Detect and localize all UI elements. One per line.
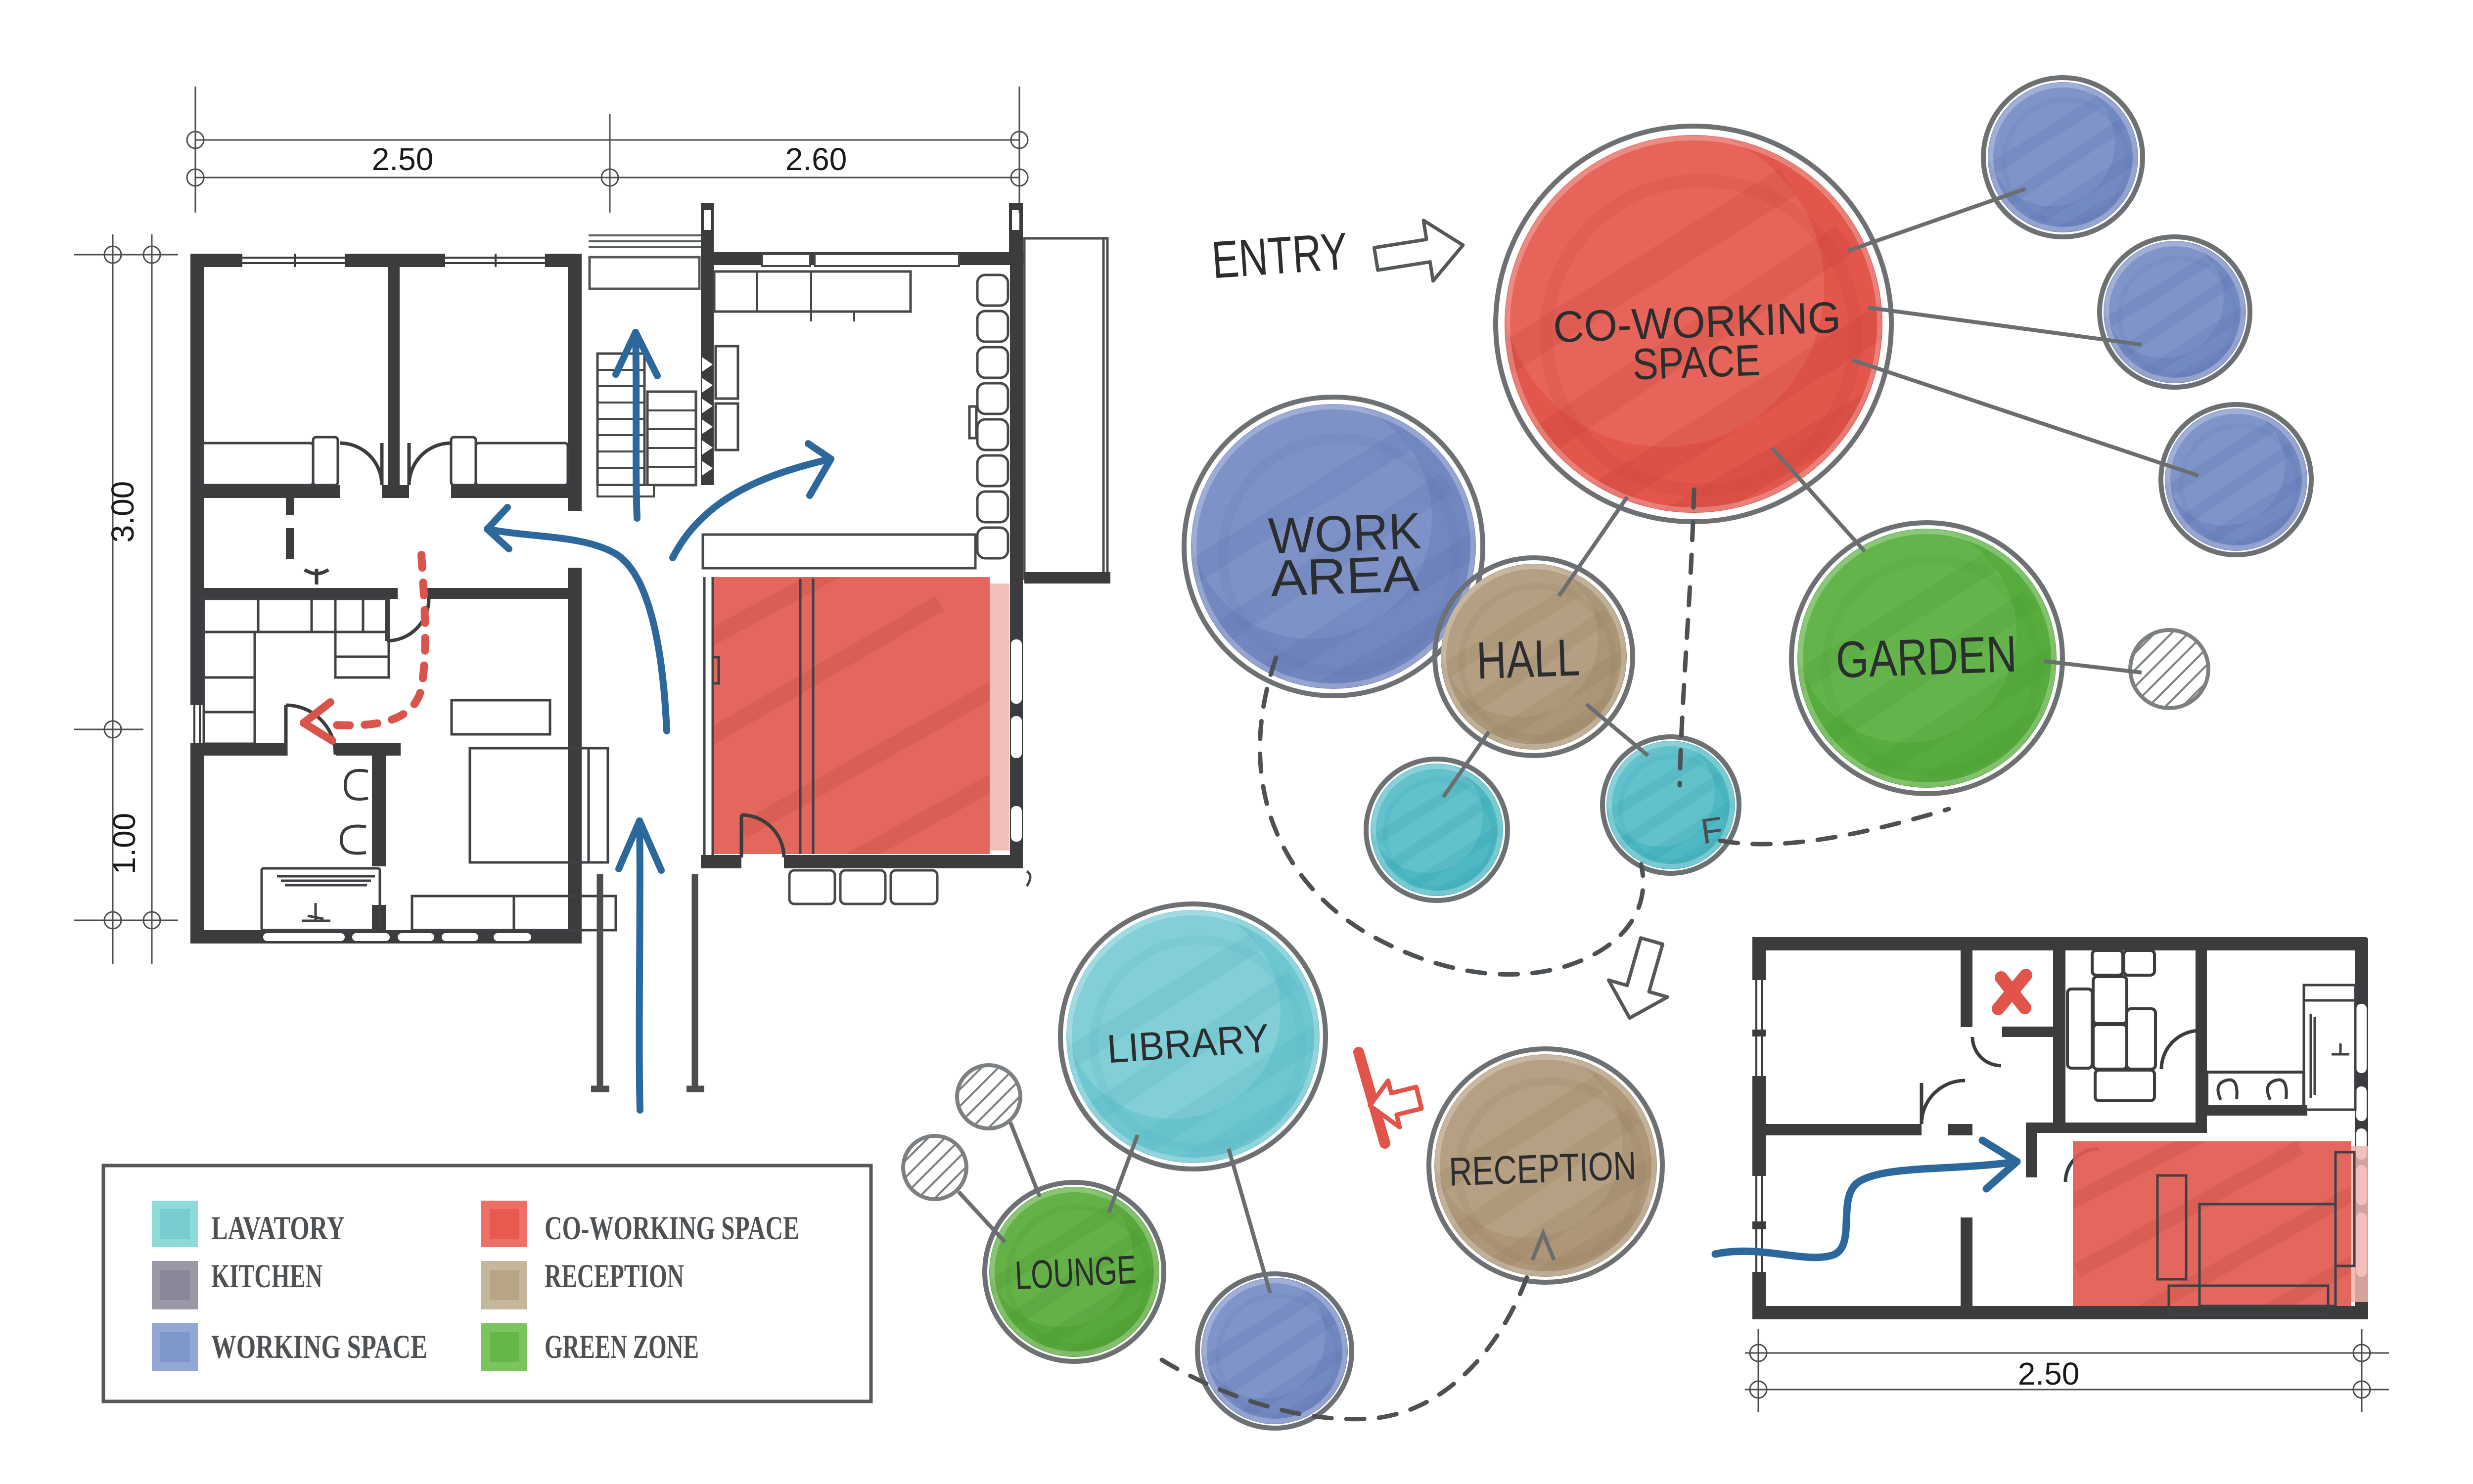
svg-text:CO-WORKING SPACE: CO-WORKING SPACE — [545, 1209, 799, 1247]
svg-text:SPACE: SPACE — [1632, 335, 1761, 389]
svg-text:AREA: AREA — [1270, 545, 1420, 607]
svg-text:KITCHEN: KITCHEN — [211, 1257, 322, 1295]
svg-text:LOUNGE: LOUNGE — [1014, 1248, 1137, 1299]
svg-text:GARDEN: GARDEN — [1835, 626, 2018, 689]
svg-text:3.00: 3.00 — [105, 481, 140, 543]
svg-text:2.50: 2.50 — [372, 141, 434, 177]
svg-text:GREEN ZONE: GREEN ZONE — [545, 1328, 699, 1365]
svg-text:2.60: 2.60 — [785, 141, 847, 177]
svg-text:1.00: 1.00 — [106, 813, 142, 875]
svg-text:RECEPTION: RECEPTION — [1448, 1143, 1637, 1194]
svg-text:RECEPTION: RECEPTION — [545, 1257, 684, 1295]
svg-text:LAVATORY: LAVATORY — [211, 1209, 345, 1247]
svg-text:ENTRY: ENTRY — [1210, 222, 1350, 290]
svg-text:HALL: HALL — [1475, 628, 1581, 690]
svg-text:2.50: 2.50 — [2018, 1356, 2080, 1392]
svg-text:WORKING SPACE: WORKING SPACE — [211, 1328, 427, 1365]
